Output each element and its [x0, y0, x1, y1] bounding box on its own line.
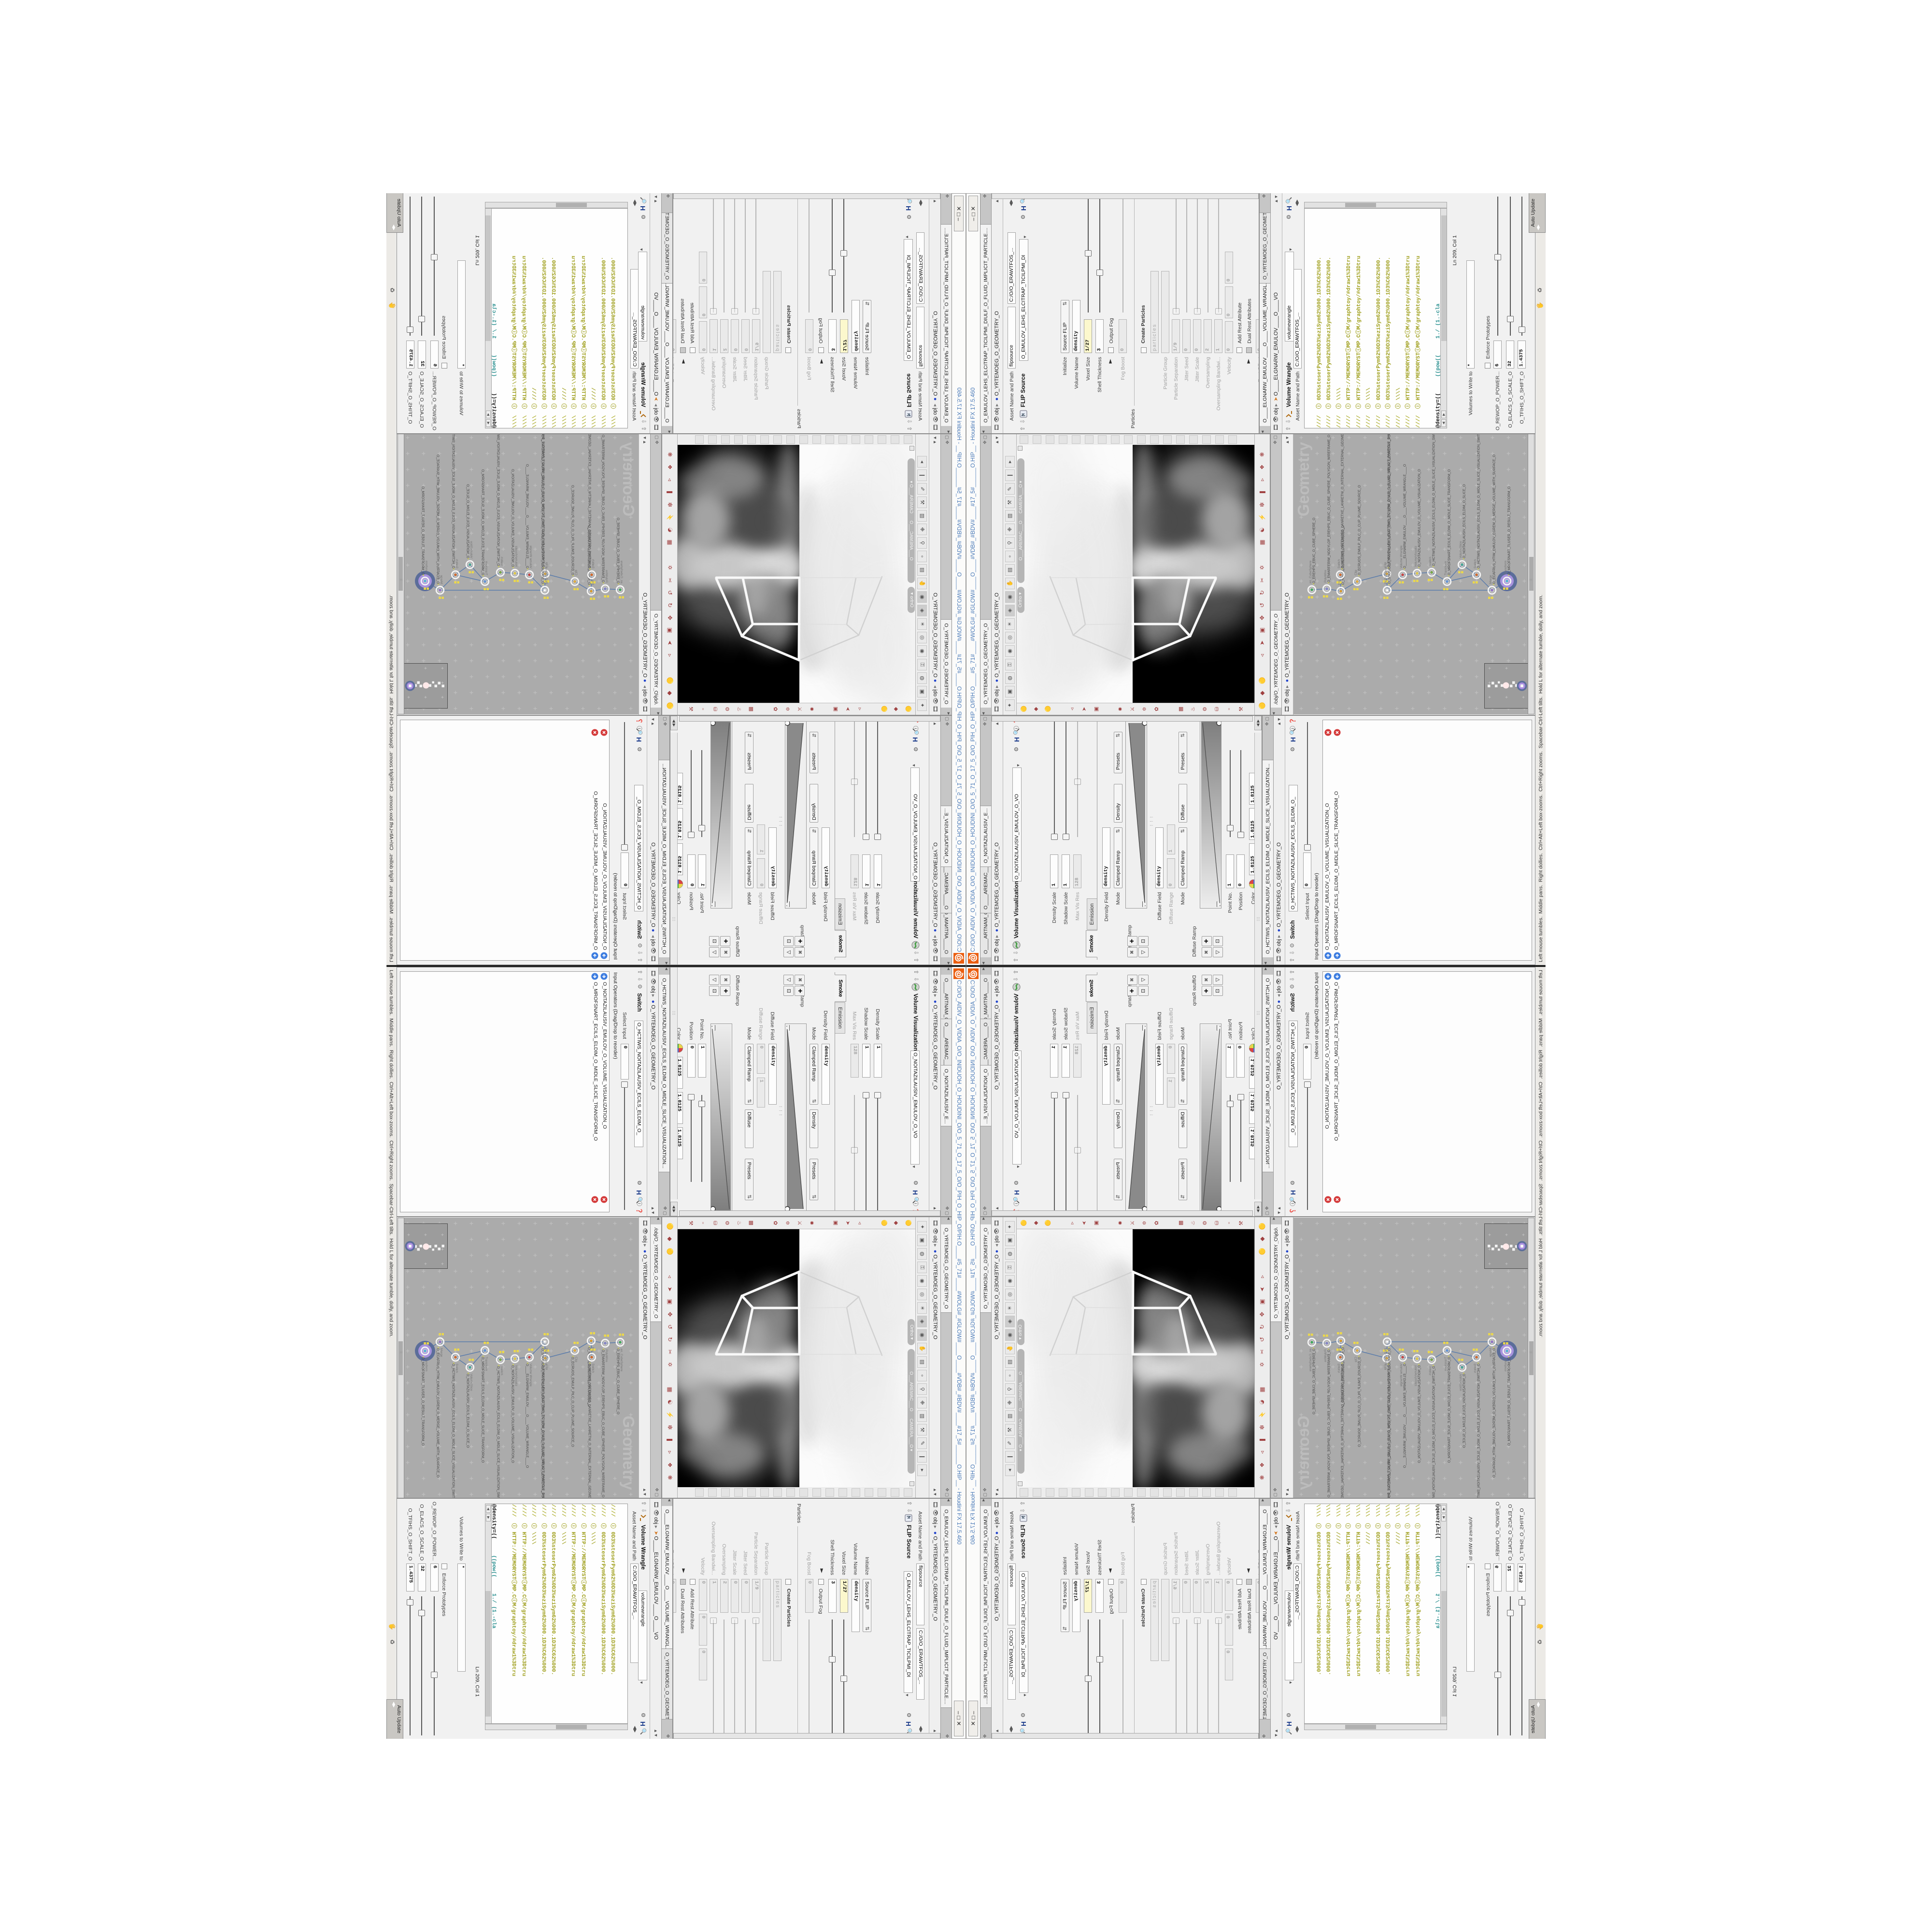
svg-text:O_ECRUOS_EMULP_PILC_O_CLIP_PLU: O_ECRUOS_EMULP_PILC_O_CLIP_PLUME_SOURCE_…	[1358, 485, 1362, 575]
svg-text:O_ECRUOS_EMULP_PILC_O_CLIP_PLU: O_ECRUOS_EMULP_PILC_O_CLIP_PLUME_SOURCE_…	[1358, 1357, 1362, 1447]
svg-text:Clip: Clip	[1354, 1357, 1358, 1363]
svg-text:O_NOITAZILAUSIV_EMULOV_O_VOLUM: O_NOITAZILAUSIV_EMULOV_O_VOLUME_VISUALIZ…	[1418, 469, 1421, 567]
svg-text:VolumeSlice: VolumeSlice	[1459, 1374, 1463, 1391]
svg-text:O_HCTIWS_NOITAZILAUSIV_ECILS_E: O_HCTIWS_NOITAZILAUSIV_ECILS_ELDIM_O_MID…	[497, 434, 500, 566]
svg-text:O_HCTIWS_NOITAZILAUSIV_ECILS_E: O_HCTIWS_NOITAZILAUSIV_ECILS_ELDIM_O_MID…	[452, 434, 455, 568]
svg-text:O____ELGNARW_EMULOV____O____VO: O____ELGNARW_EMULOV____O____VOLUME_WRANG…	[1404, 464, 1407, 568]
svg-text:O_MROFSNART_TLUSER_O_RESULT_TR: O_MROFSNART_TLUSER_O_RESULT_TRANSFORM_O	[1508, 486, 1511, 575]
svg-text:Transform: Transform	[1444, 561, 1448, 575]
svg-text:O_NOITAZILAUSIV_EMULOV_O_VOLUM: O_NOITAZILAUSIV_EMULOV_O_VOLUME_VISUALIZ…	[511, 469, 514, 567]
svg-text:Switch: Switch	[1474, 1364, 1477, 1373]
svg-text:O_MROFSNART_ECILS_ELDIM_O_MIDL: O_MROFSNART_ECILS_ELDIM_O_MIDLE_SLICE_TR…	[481, 469, 484, 575]
svg-text:Switch: Switch	[591, 559, 595, 568]
svg-text:PolyWire: PolyWire	[1324, 1350, 1327, 1362]
svg-text:Transform: Transform	[1504, 561, 1507, 575]
svg-text:O_HCTIWS_NOITAZILAUSIV_ECILS_E: O_HCTIWS_NOITAZILAUSIV_ECILS_ELDIM_O_MID…	[1433, 434, 1436, 566]
svg-text:an_CubeSphere: an_CubeSphere	[1309, 560, 1312, 583]
svg-text:Merge: Merge	[1489, 1348, 1492, 1357]
svg-text:FLIP Source: FLIP Source	[1384, 567, 1388, 584]
svg-text:Volume Wrangle: Volume Wrangle	[1400, 1364, 1403, 1387]
svg-text:O_ECRUOS_EMULP_PILC_O_CLIP_PLU: O_ECRUOS_EMULP_PILC_O_CLIP_PLUME_SOURCE_…	[571, 485, 574, 575]
svg-text:PolyWire: PolyWire	[1324, 570, 1327, 582]
svg-text:Switch: Switch	[500, 1366, 503, 1376]
svg-text:FLIP Source: FLIP Source	[544, 1348, 548, 1365]
svg-text:O_ECAFRUS_HTIW_EMULOV_EGREM_O_: O_ECAFRUS_HTIW_EMULOV_EGREM_O_MERGE_VOLU…	[1493, 1348, 1496, 1478]
svg-text:O_HCTIWS_YRTEMOEG_LANRETXE_LAN: O_HCTIWS_YRTEMOEG_LANRETXE_LANRETNI_O_IN…	[1341, 434, 1345, 568]
svg-text:O_HCTIWS_YRTEMOEG_LANRETXE_LAN: O_HCTIWS_YRTEMOEG_LANRETXE_LANRETNI_O_IN…	[1341, 1364, 1345, 1498]
svg-text:Switch: Switch	[1337, 1364, 1341, 1373]
svg-text:O_MROFSNART_TLUSER_O_RESULT_TR: O_MROFSNART_TLUSER_O_RESULT_TRANSFORM_O	[421, 1357, 425, 1446]
svg-text:Switch: Switch	[1429, 556, 1432, 566]
svg-text:O_SNOGILOP_YRTEMOEG_MORF_EMULO: O_SNOGILOP_YRTEMOEG_MORF_EMULOV_BDV_O_VD…	[541, 434, 544, 584]
svg-text:Volume Wrangle: Volume Wrangle	[1400, 545, 1403, 568]
svg-text:O_ECAFRUS_HTIW_EMULOV_EGREM_O_: O_ECAFRUS_HTIW_EMULOV_EGREM_O_MERGE_VOLU…	[1493, 454, 1496, 584]
svg-text:O____ELGNARW_EMULOV____O____VO: O____ELGNARW_EMULOV____O____VOLUME_WRANG…	[526, 464, 529, 568]
svg-text:O_HCTIWS_NOITAZILAUSIV_ECILS_E: O_HCTIWS_NOITAZILAUSIV_ECILS_ELDIM_O_MID…	[497, 1366, 500, 1498]
svg-text:an_CubeSphere: an_CubeSphere	[1309, 1349, 1312, 1372]
svg-text:O_EMARFERIW_NOGYLOP_EREHPS_EBU: O_EMARFERIW_NOGYLOP_EREHPS_EBUC_O_CUBE_S…	[601, 1350, 605, 1498]
svg-text:VolumeVisualiz: VolumeVisualiz	[514, 1365, 518, 1386]
svg-text:Transform: Transform	[425, 1357, 428, 1371]
svg-text:Clip: Clip	[574, 1357, 578, 1363]
svg-text:O_ECAFRUS_HTIW_EMULOV_EGREM_O_: O_ECAFRUS_HTIW_EMULOV_EGREM_O_MERGE_VOLU…	[436, 454, 440, 584]
svg-text:VolumeSlice: VolumeSlice	[469, 541, 473, 558]
svg-text:O_HCTIWS_NOITAZILAUSIV_ECILS_E: O_HCTIWS_NOITAZILAUSIV_ECILS_ELDIM_O_MID…	[1477, 434, 1481, 568]
svg-text:FLIP Source: FLIP Source	[1384, 1348, 1388, 1365]
svg-text:O_MROFSNART_ECILS_ELDIM_O_MIDL: O_MROFSNART_ECILS_ELDIM_O_MIDLE_SLICE_TR…	[1448, 1357, 1451, 1463]
svg-text:Switch: Switch	[500, 556, 503, 566]
svg-text:O_EMARFERIW_NOGYLOP_EREHPS_EBU: O_EMARFERIW_NOGYLOP_EREHPS_EBUC_O_CUBE_S…	[601, 434, 605, 582]
svg-text:Merge: Merge	[440, 575, 443, 584]
svg-text:Switch: Switch	[1474, 559, 1477, 568]
svg-text:Volume Wrangle: Volume Wrangle	[529, 545, 532, 568]
svg-text:O_NOITAZILAUSIV_EMULOV_O_VOLUM: O_NOITAZILAUSIV_EMULOV_O_VOLUME_VISUALIZ…	[1418, 1365, 1421, 1463]
svg-text:O_SNOGILOP_YRTEMOEG_MORF_EMULO: O_SNOGILOP_YRTEMOEG_MORF_EMULOV_BDV_O_VD…	[1388, 434, 1392, 584]
svg-text:Merge: Merge	[440, 1348, 443, 1357]
svg-text:O_EREHPS_EBUC_O_CUBE_SPHERE_O: O_EREHPS_EBUC_O_CUBE_SPHERE_O	[1313, 517, 1316, 583]
svg-text:VolumeSlice: VolumeSlice	[469, 1374, 473, 1391]
svg-text:O_MROFSNART_ECILS_ELDIM_O_MIDL: O_MROFSNART_ECILS_ELDIM_O_MIDLE_SLICE_TR…	[481, 1357, 484, 1463]
svg-text:O_EMARFERIW_NOGYLOP_EREHPS_EBU: O_EMARFERIW_NOGYLOP_EREHPS_EBUC_O_CUBE_S…	[1328, 434, 1331, 582]
svg-text:Clip: Clip	[1354, 569, 1358, 575]
svg-text:O_HCTIWS_YRTEMOEG_LANRETXE_LAN: O_HCTIWS_YRTEMOEG_LANRETXE_LANRETNI_O_IN…	[588, 1364, 591, 1498]
svg-text:O_SNOGILOP_YRTEMOEG_MORF_EMULO: O_SNOGILOP_YRTEMOEG_MORF_EMULOV_BDV_O_VD…	[541, 1348, 544, 1498]
svg-text:an_CubeSphere: an_CubeSphere	[620, 1349, 623, 1372]
svg-text:O_NOITAZILAUSIV_ECILS_ELDIM_O_: O_NOITAZILAUSIV_ECILS_ELDIM_O_SLICE_O	[1463, 1374, 1466, 1448]
svg-text:VolumeVisualiz: VolumeVisualiz	[1414, 546, 1418, 567]
svg-text:Transform: Transform	[484, 561, 488, 575]
svg-text:O_ECAFRUS_HTIW_EMULOV_EGREM_O_: O_ECAFRUS_HTIW_EMULOV_EGREM_O_MERGE_VOLU…	[436, 1348, 440, 1478]
svg-text:Switch: Switch	[1429, 1366, 1432, 1376]
svg-text:O_HCTIWS_YRTEMOEG_LANRETXE_LAN: O_HCTIWS_YRTEMOEG_LANRETXE_LANRETNI_O_IN…	[588, 434, 591, 568]
svg-text:O_HCTIWS_NOITAZILAUSIV_ECILS_E: O_HCTIWS_NOITAZILAUSIV_ECILS_ELDIM_O_MID…	[1477, 1364, 1481, 1498]
svg-text:O_MROFSNART_ECILS_ELDIM_O_MIDL: O_MROFSNART_ECILS_ELDIM_O_MIDLE_SLICE_TR…	[1448, 469, 1451, 575]
svg-text:O_NOITAZILAUSIV_ECILS_ELDIM_O_: O_NOITAZILAUSIV_ECILS_ELDIM_O_SLICE_O	[466, 484, 469, 558]
svg-text:Transform: Transform	[1444, 1357, 1448, 1371]
svg-text:O_EMARFERIW_NOGYLOP_EREHPS_EBU: O_EMARFERIW_NOGYLOP_EREHPS_EBUC_O_CUBE_S…	[1328, 1350, 1331, 1498]
svg-text:Switch: Switch	[455, 559, 458, 568]
svg-text:Switch: Switch	[1337, 559, 1341, 568]
svg-text:VolumeVisualiz: VolumeVisualiz	[1414, 1365, 1418, 1386]
svg-text:O_NOITAZILAUSIV_EMULOV_O_VOLUM: O_NOITAZILAUSIV_EMULOV_O_VOLUME_VISUALIZ…	[511, 1365, 514, 1463]
svg-text:PolyWire: PolyWire	[605, 1350, 608, 1362]
svg-text:O_NOITAZILAUSIV_ECILS_ELDIM_O_: O_NOITAZILAUSIV_ECILS_ELDIM_O_SLICE_O	[466, 1374, 469, 1448]
svg-text:Clip: Clip	[574, 569, 578, 575]
svg-text:O____ELGNARW_EMULOV____O____VO: O____ELGNARW_EMULOV____O____VOLUME_WRANG…	[526, 1364, 529, 1468]
svg-text:PolyWire: PolyWire	[605, 570, 608, 582]
svg-text:O_SNOGILOP_YRTEMOEG_MORF_EMULO: O_SNOGILOP_YRTEMOEG_MORF_EMULOV_BDV_O_VD…	[1388, 1348, 1392, 1498]
svg-text:Transform: Transform	[1504, 1357, 1507, 1371]
svg-text:Merge: Merge	[1489, 575, 1492, 584]
svg-text:O_NOITAZILAUSIV_ECILS_ELDIM_O_: O_NOITAZILAUSIV_ECILS_ELDIM_O_SLICE_O	[1463, 484, 1466, 558]
svg-text:Switch: Switch	[591, 1364, 595, 1373]
svg-text:O_EREHPS_EBUC_O_CUBE_SPHERE_O: O_EREHPS_EBUC_O_CUBE_SPHERE_O	[616, 517, 620, 583]
svg-text:O_MROFSNART_TLUSER_O_RESULT_TR: O_MROFSNART_TLUSER_O_RESULT_TRANSFORM_O	[421, 486, 425, 575]
svg-text:an_CubeSphere: an_CubeSphere	[620, 560, 623, 583]
svg-text:VolumeVisualiz: VolumeVisualiz	[514, 546, 518, 567]
svg-text:O_HCTIWS_NOITAZILAUSIV_ECILS_E: O_HCTIWS_NOITAZILAUSIV_ECILS_ELDIM_O_MID…	[1433, 1366, 1436, 1498]
svg-text:O____ELGNARW_EMULOV____O____VO: O____ELGNARW_EMULOV____O____VOLUME_WRANG…	[1404, 1364, 1407, 1468]
svg-text:O_EREHPS_EBUC_O_CUBE_SPHERE_O: O_EREHPS_EBUC_O_CUBE_SPHERE_O	[1313, 1349, 1316, 1415]
svg-text:O_EREHPS_EBUC_O_CUBE_SPHERE_O: O_EREHPS_EBUC_O_CUBE_SPHERE_O	[616, 1349, 620, 1415]
svg-text:Volume Wrangle: Volume Wrangle	[529, 1364, 532, 1387]
svg-text:FLIP Source: FLIP Source	[544, 567, 548, 584]
svg-text:Switch: Switch	[455, 1364, 458, 1373]
svg-text:O_HCTIWS_NOITAZILAUSIV_ECILS_E: O_HCTIWS_NOITAZILAUSIV_ECILS_ELDIM_O_MID…	[452, 1364, 455, 1498]
svg-text:O_MROFSNART_TLUSER_O_RESULT_TR: O_MROFSNART_TLUSER_O_RESULT_TRANSFORM_O	[1508, 1357, 1511, 1446]
svg-text:O_ECRUOS_EMULP_PILC_O_CLIP_PLU: O_ECRUOS_EMULP_PILC_O_CLIP_PLUME_SOURCE_…	[571, 1357, 574, 1447]
svg-text:Transform: Transform	[425, 561, 428, 575]
svg-text:VolumeSlice: VolumeSlice	[1459, 541, 1463, 558]
svg-text:Transform: Transform	[484, 1357, 488, 1371]
